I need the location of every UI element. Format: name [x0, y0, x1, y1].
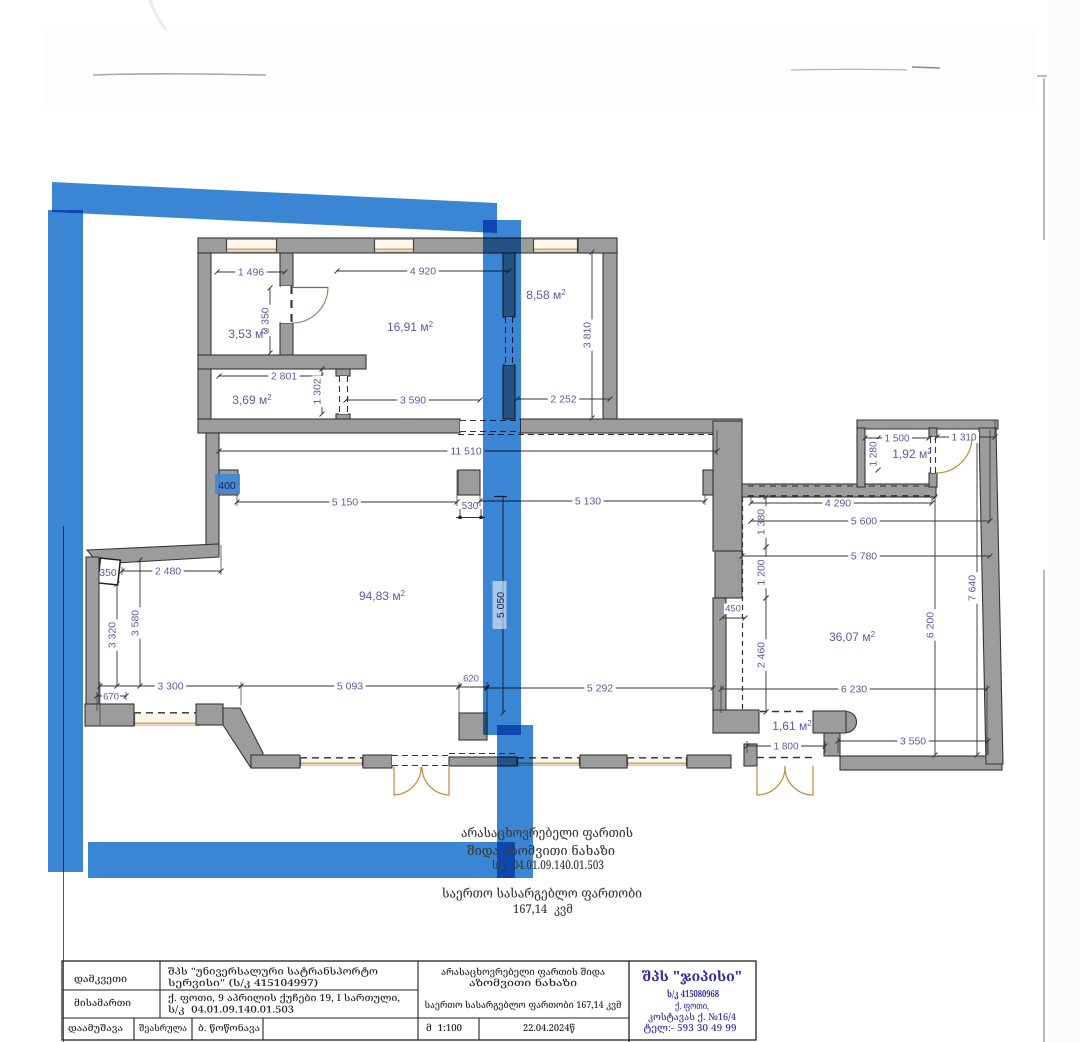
svg-text:400: 400 [218, 480, 236, 492]
svg-text:1 496: 1 496 [238, 267, 264, 279]
svg-text:530: 530 [462, 501, 479, 512]
svg-text:3 300: 3 300 [157, 681, 183, 693]
svg-text:2 480: 2 480 [155, 566, 181, 578]
svg-text:3,69 м2: 3,69 м2 [232, 393, 272, 407]
svg-text:36,07 м2: 36,07 м2 [829, 630, 876, 644]
svg-text:2 252: 2 252 [550, 394, 576, 406]
svg-text:5 130: 5 130 [575, 496, 601, 508]
svg-text:1 200: 1 200 [756, 559, 768, 585]
svg-text:1 310: 1 310 [951, 433, 976, 444]
svg-text:5 150: 5 150 [332, 497, 358, 509]
svg-text:94,83 м2: 94,83 м2 [359, 589, 406, 603]
svg-text:3 550: 3 550 [900, 736, 926, 748]
svg-text:16,91 м2: 16,91 м2 [387, 320, 434, 334]
svg-text:5 600: 5 600 [851, 516, 877, 528]
svg-text:450: 450 [725, 604, 741, 615]
svg-text:1,92 м2: 1,92 м2 [892, 447, 932, 461]
svg-text:5 780: 5 780 [851, 551, 877, 563]
svg-text:5 292: 5 292 [587, 683, 613, 695]
svg-text:1,61 м2: 1,61 м2 [772, 719, 812, 733]
svg-text:1 500: 1 500 [884, 434, 909, 445]
svg-text:7 640: 7 640 [967, 575, 979, 601]
svg-text:2 801: 2 801 [271, 371, 297, 383]
svg-text:620: 620 [463, 674, 479, 685]
svg-text:1 380: 1 380 [756, 509, 768, 535]
svg-text:6 200: 6 200 [925, 612, 937, 638]
svg-text:3 320: 3 320 [107, 622, 119, 648]
svg-text:3,53 м2: 3,53 м2 [228, 327, 268, 341]
svg-text:4 290: 4 290 [825, 498, 851, 510]
svg-text:350: 350 [99, 567, 117, 579]
svg-text:3 580: 3 580 [130, 610, 142, 636]
svg-text:5 093: 5 093 [337, 681, 363, 693]
svg-text:5 050: 5 050 [495, 592, 507, 618]
svg-text:3 810: 3 810 [582, 322, 594, 348]
svg-text:2 460: 2 460 [756, 642, 768, 668]
svg-text:3 590: 3 590 [400, 395, 426, 407]
svg-text:1 800: 1 800 [773, 742, 798, 753]
svg-text:1 280: 1 280 [869, 441, 880, 466]
svg-text:670: 670 [103, 692, 119, 703]
svg-text:6 230: 6 230 [841, 684, 867, 696]
svg-text:4 920: 4 920 [410, 266, 436, 278]
svg-text:1 302: 1 302 [312, 378, 324, 404]
svg-text:11 510: 11 510 [450, 446, 481, 458]
svg-text:8,58 м2: 8,58 м2 [526, 288, 566, 302]
